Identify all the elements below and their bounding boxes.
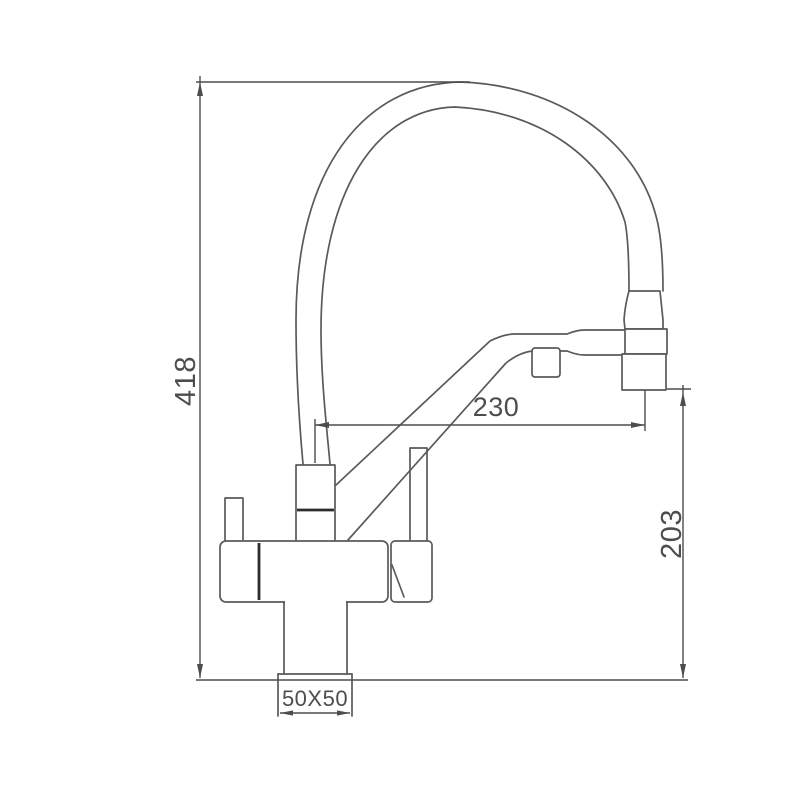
dim-203-label: 203 bbox=[656, 509, 688, 559]
neck-column bbox=[296, 465, 335, 542]
spout-arm-lower-line bbox=[348, 351, 625, 540]
stem-fill bbox=[285, 600, 346, 674]
dim-50x50-label: 50X50 bbox=[282, 686, 348, 711]
dim-230-arrow-right-icon bbox=[631, 422, 645, 428]
faucet-dimension-drawing: 418 230 203 50X50 bbox=[0, 0, 800, 800]
technical-drawing-svg: 418 230 203 50X50 bbox=[0, 0, 800, 800]
hose-end-fitting bbox=[624, 291, 663, 329]
dim-230-arrow-left-icon bbox=[315, 422, 329, 428]
nozzle-spout-block bbox=[622, 354, 666, 390]
faucet-outline bbox=[220, 82, 667, 716]
arm-outlet-block bbox=[532, 348, 560, 377]
main-body bbox=[220, 541, 388, 602]
dimension-230: 230 bbox=[315, 390, 645, 463]
left-handle bbox=[225, 498, 243, 543]
dim-50x50-arrow-right-icon bbox=[337, 710, 350, 715]
dim-50x50-arrow-left-icon bbox=[280, 710, 293, 715]
dim-418-arrow-down-icon bbox=[197, 664, 203, 678]
dim-418-label: 418 bbox=[170, 356, 202, 406]
dimension-50x50: 50X50 bbox=[280, 686, 350, 716]
dim-203-arrow-down-icon bbox=[680, 664, 686, 678]
nozzle-upper-block bbox=[625, 329, 667, 354]
dimension-203: 203 bbox=[656, 385, 691, 678]
dim-203-arrow-up-icon bbox=[680, 392, 686, 406]
dim-230-label: 230 bbox=[473, 392, 520, 422]
lever-base-block bbox=[391, 541, 432, 602]
dim-418-arrow-up-icon bbox=[197, 82, 203, 96]
